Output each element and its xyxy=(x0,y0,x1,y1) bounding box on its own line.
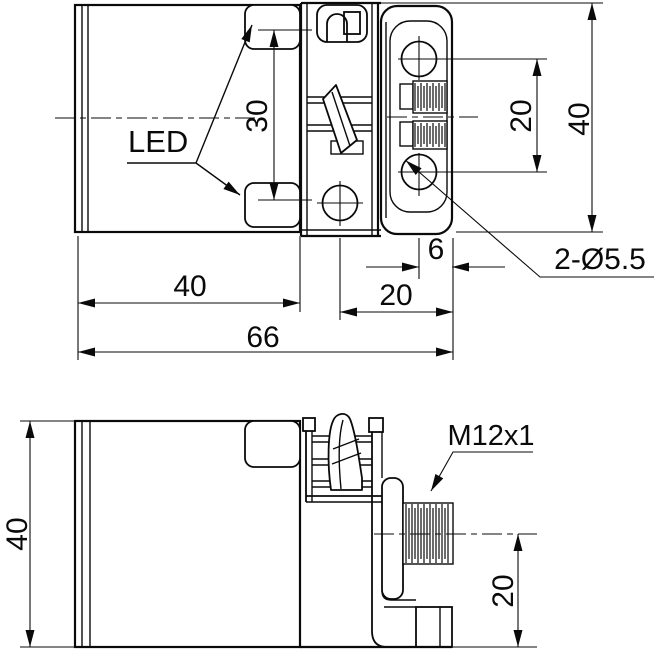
dim-40v-arrow-up xyxy=(588,3,597,20)
dim-20v-label: 20 xyxy=(505,99,538,132)
dim-20v-arrow-down xyxy=(533,155,542,172)
dim-overall-length: 66 xyxy=(78,321,453,357)
mounting-bracket xyxy=(381,6,478,234)
dim-40v-label: 40 xyxy=(563,102,596,135)
cam-lever xyxy=(323,85,357,153)
dim-6-arrow-left xyxy=(452,263,469,272)
clamp-right-cap xyxy=(369,418,383,432)
dim-40h-label: 40 xyxy=(173,270,206,303)
connector-neck-bottom xyxy=(400,122,413,146)
dim-66-arrow-right xyxy=(436,348,453,357)
side-view-body xyxy=(75,421,300,647)
dim-6-label: 6 xyxy=(428,233,445,266)
cam-strap-side xyxy=(329,414,362,490)
top-view: LED 30 20 40 xyxy=(55,3,654,360)
dim-overall-height-side: 40 xyxy=(1,421,75,647)
clamp-hole-crosshair xyxy=(317,181,363,226)
dim-20s-label: 20 xyxy=(487,574,520,607)
dim-20s-arrow-down xyxy=(514,630,523,647)
clamp-side xyxy=(303,414,383,502)
m12-label: M12x1 xyxy=(447,420,534,452)
dim-40s-arrow-down xyxy=(26,630,35,647)
dim-20h-arrow-left xyxy=(340,308,357,317)
dim-hole-spacing: 20 xyxy=(437,59,547,172)
dim-66-label: 66 xyxy=(246,321,279,354)
dim-66-arrow-left xyxy=(78,348,95,357)
dim-40v-arrow-down xyxy=(588,215,597,232)
bracket-foot xyxy=(416,607,452,647)
holes-callout-label: 2-Ø5.5 xyxy=(554,243,646,276)
connector-neck-top xyxy=(400,84,413,109)
dim-40s-label: 40 xyxy=(1,517,34,550)
technical-drawing-page: LED 30 20 40 xyxy=(0,0,658,658)
side-view: 40 M12x1 20 xyxy=(1,414,537,647)
clamp-left-cap xyxy=(303,418,315,431)
dim-40h-arrow-right xyxy=(283,299,300,308)
connector-flange xyxy=(382,478,403,599)
led-window-side xyxy=(245,421,300,467)
sensor-dimensional-drawing: LED 30 20 40 xyxy=(0,0,658,658)
dim-6-arrow-right xyxy=(402,263,419,272)
dim-20h-arrow-right xyxy=(436,308,453,317)
dim-20h-label: 20 xyxy=(379,279,412,312)
dim-hole-edge-offset: 6 xyxy=(366,233,505,279)
dim-40h-arrow-left xyxy=(78,299,95,308)
dim-30-label: 30 xyxy=(241,99,274,132)
dim-20v-arrow-up xyxy=(533,59,542,76)
led-label: LED xyxy=(128,124,188,159)
dim-connector-height: 20 xyxy=(452,534,537,647)
connector-callout: M12x1 xyxy=(431,420,535,491)
m12-leader-line xyxy=(431,452,533,491)
clamp-block xyxy=(301,3,381,236)
dim-20s-arrow-up xyxy=(514,534,523,551)
dim-40s-arrow-up xyxy=(26,421,35,438)
m12-leader-arrow xyxy=(431,474,443,491)
